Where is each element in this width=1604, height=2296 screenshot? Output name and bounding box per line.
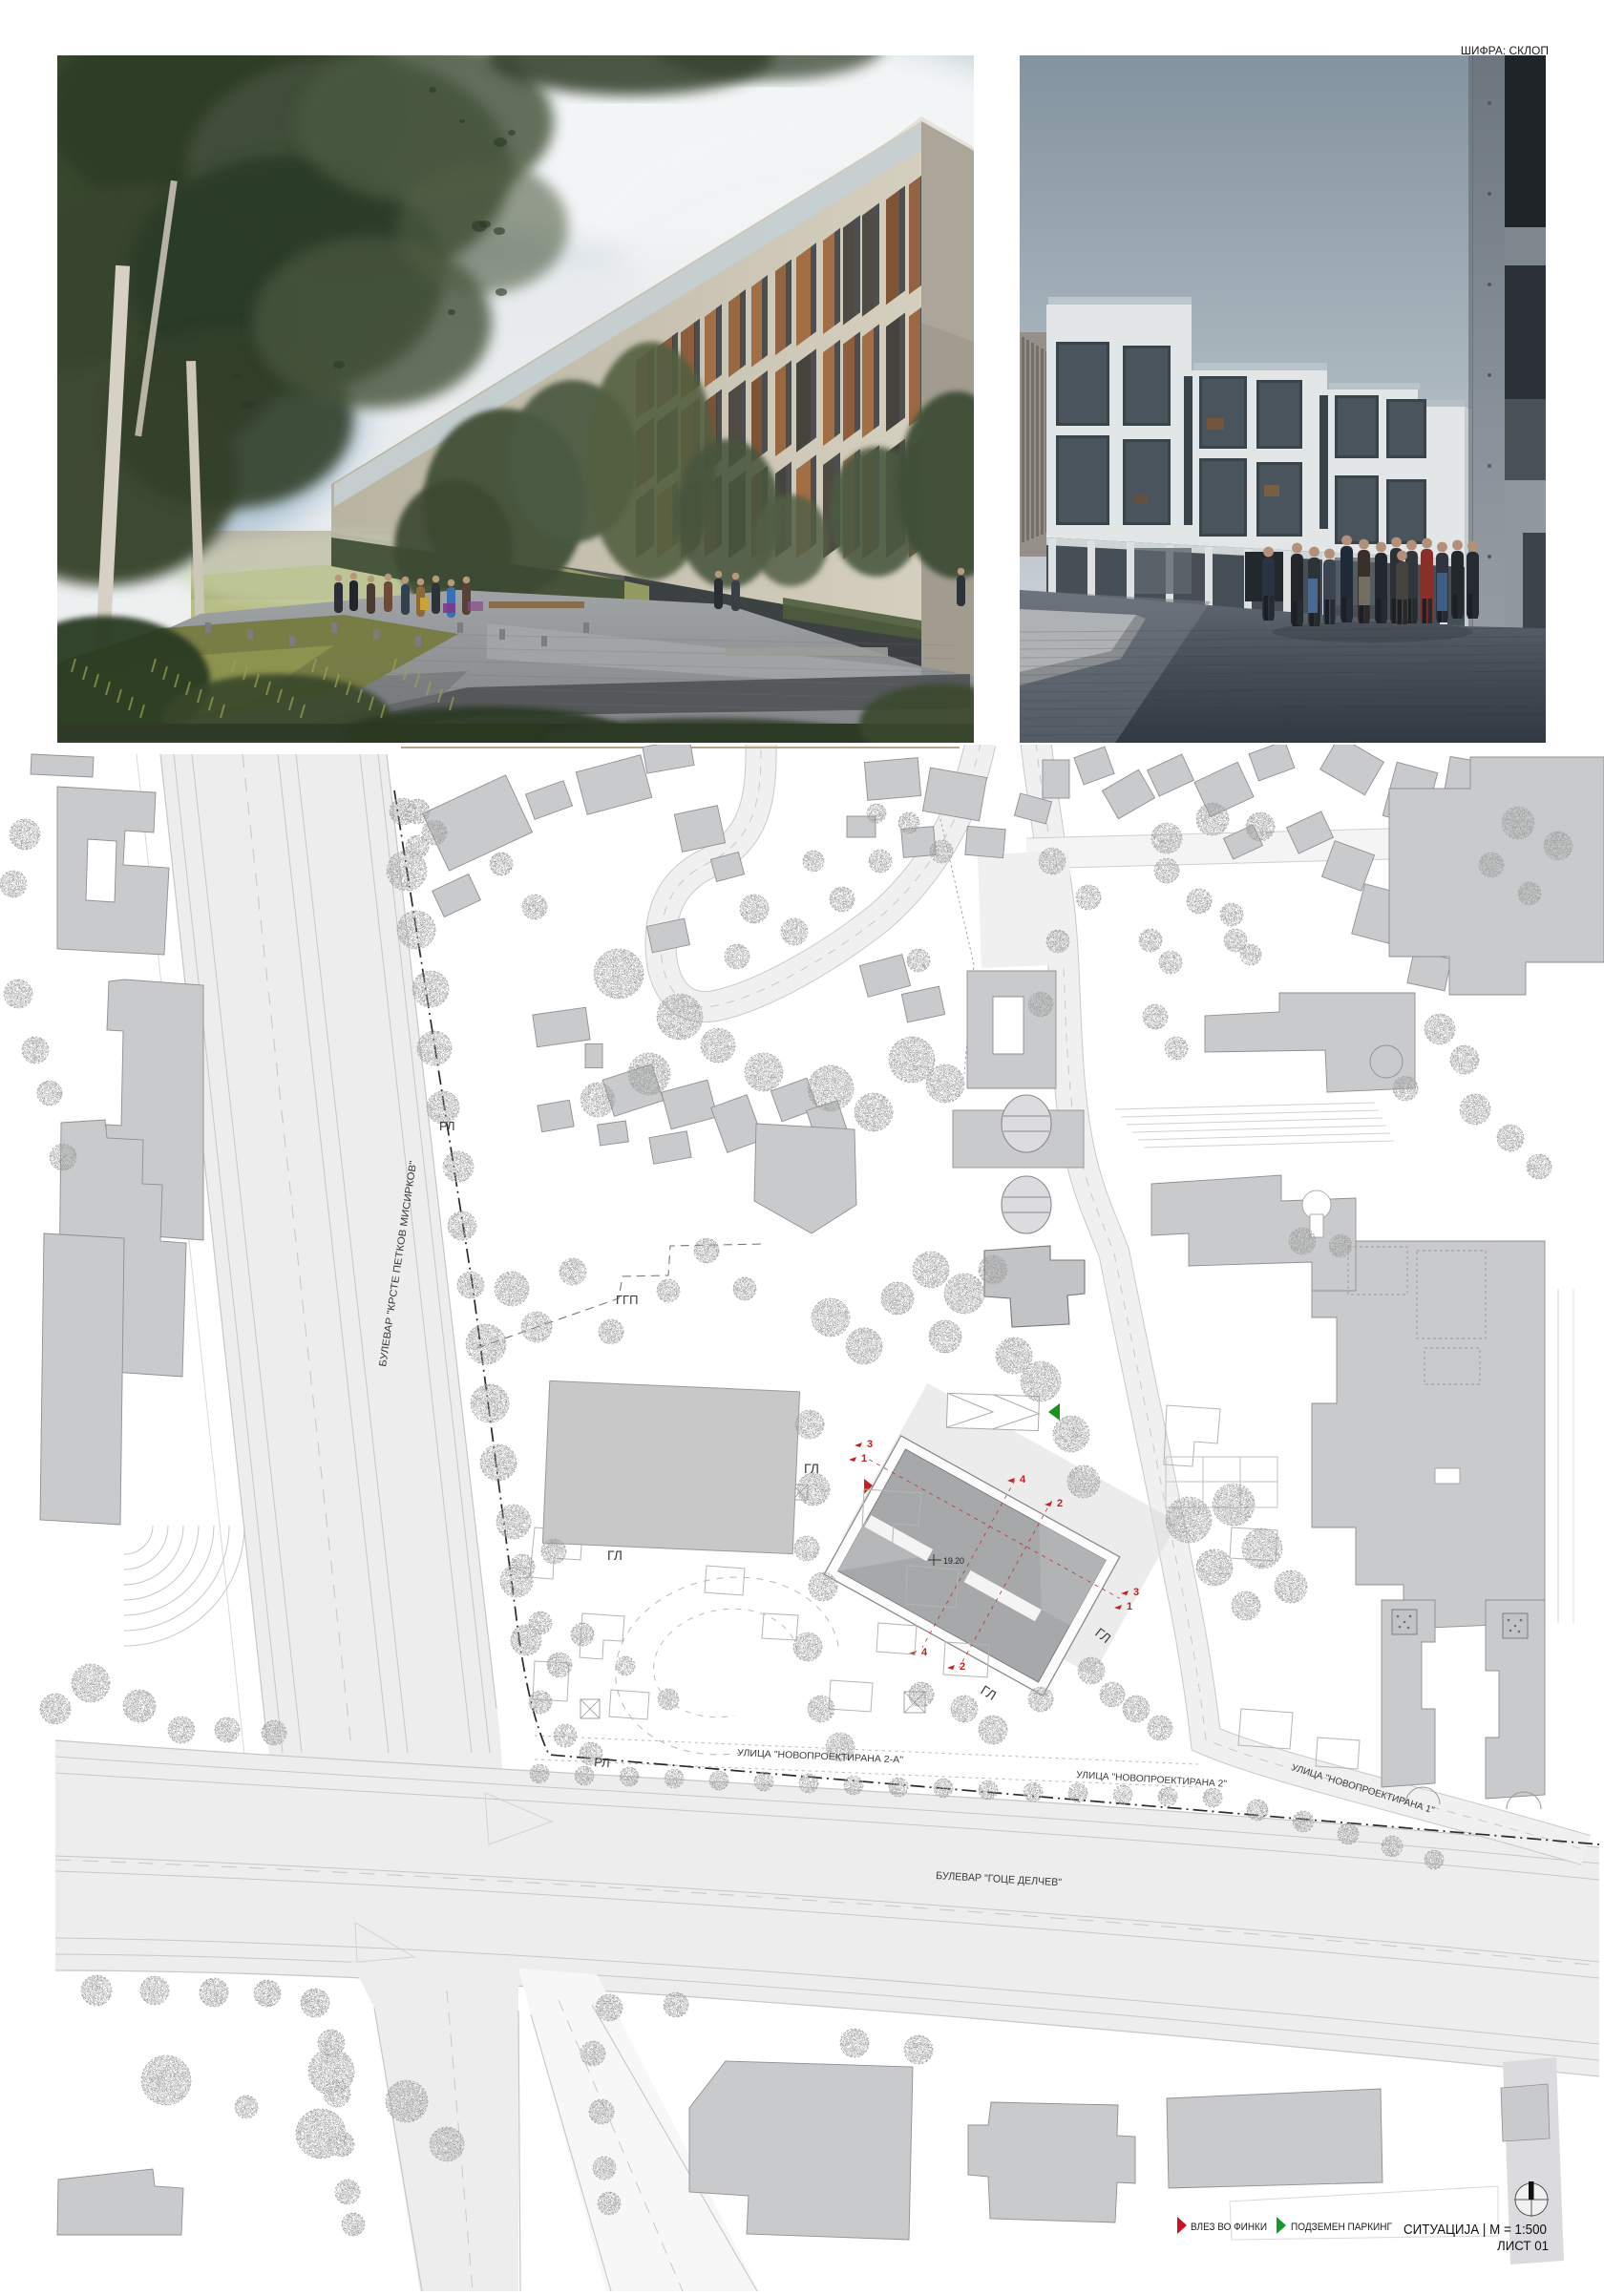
svg-text:ЛИСТ 01: ЛИСТ 01: [1497, 2239, 1549, 2253]
svg-text:ВЛЕЗ ВО ФИНКИ: ВЛЕЗ ВО ФИНКИ: [1191, 2222, 1267, 2233]
svg-text:СИТУАЦИЈА | М = 1:500: СИТУАЦИЈА | М = 1:500: [1403, 2222, 1547, 2238]
svg-text:ПОДЗЕМЕН ПАРКИНГ: ПОДЗЕМЕН ПАРКИНГ: [1291, 2222, 1392, 2233]
svg-text:ГГП: ГГП: [616, 1293, 638, 1307]
svg-text:3: 3: [867, 1439, 873, 1450]
svg-text:19.20: 19.20: [943, 1556, 964, 1566]
svg-text:1: 1: [861, 1453, 867, 1464]
svg-text:3: 3: [1133, 1587, 1139, 1598]
svg-text:1: 1: [1127, 1601, 1132, 1612]
svg-text:4: 4: [1020, 1474, 1026, 1485]
svg-text:2: 2: [1057, 1498, 1063, 1509]
svg-text:4: 4: [921, 1647, 928, 1658]
svg-text:РЛ: РЛ: [439, 1119, 454, 1133]
svg-text:ГЛ: ГЛ: [607, 1548, 623, 1563]
svg-text:ГЛ: ГЛ: [804, 1461, 819, 1476]
svg-text:2: 2: [960, 1661, 965, 1673]
svg-text:РЛ: РЛ: [594, 1755, 610, 1770]
